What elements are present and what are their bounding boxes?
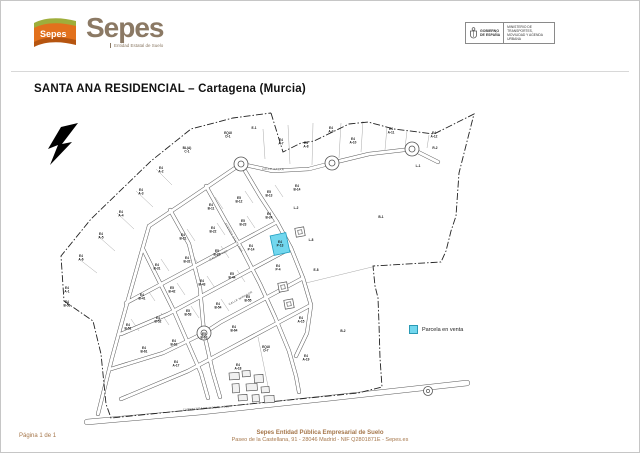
building-footprint: [238, 394, 247, 401]
parcel-label: E4A-5: [98, 232, 103, 240]
utility-square-inner: [287, 302, 292, 307]
parcel-label: BL(A)C-1: [183, 146, 192, 154]
parcel-label: E4A-10: [350, 137, 357, 145]
lot-line: [361, 121, 363, 152]
parcel-label: E4A-2: [158, 166, 163, 174]
parcel-label: E5B-44: [229, 272, 236, 280]
parcel-label: E4B-62: [171, 339, 178, 347]
lot-line: [288, 125, 290, 164]
building-footprint: [229, 372, 239, 380]
building-footprint: [246, 383, 257, 391]
building-footprint: [242, 370, 250, 377]
lot-line: [275, 185, 283, 197]
parcel-label: E-1: [252, 126, 257, 130]
document-footer: Sepes Entidad Pública Empresarial de Sue…: [1, 430, 639, 443]
parcel-label: E4B-61: [141, 346, 148, 354]
property-boundary: [61, 113, 474, 418]
parcel-label: E4A-12: [431, 131, 438, 139]
street-casing: [241, 164, 311, 356]
building-footprint: [264, 395, 274, 403]
utility-square-inner: [298, 230, 303, 235]
parcel-label: E4P-4: [276, 264, 281, 272]
lot-line: [217, 223, 225, 235]
parcel-label: E5B-42: [169, 286, 176, 294]
parcel-label: E4A-3: [138, 188, 143, 196]
parcel-label: E4B-43: [199, 279, 206, 287]
parcel-label: B-2: [340, 329, 345, 333]
lot-line: [191, 306, 199, 318]
parcel-label: E4P-14: [248, 244, 255, 252]
cul-de-sac: [424, 387, 433, 396]
parcel-label: E4B-56: [64, 300, 71, 308]
parcel-label: E4A-15: [298, 316, 305, 324]
parcel-label: E5B-53: [185, 309, 192, 317]
street: [332, 149, 412, 163]
parcel-label: E4B-31: [154, 263, 161, 271]
parcel-label: L-8: [309, 238, 314, 242]
parcel-label: E4A-1: [64, 286, 69, 294]
parcel-label: EQUID-1: [224, 131, 232, 139]
parcel-label: E5B-23: [240, 219, 247, 227]
building-footprint: [254, 374, 264, 383]
parcel-label: E-8: [314, 268, 319, 272]
parcel-label: E5B-12: [236, 196, 243, 204]
lot-line: [207, 276, 215, 288]
roundabout-island: [238, 161, 244, 167]
parcel-label: E4A-19: [303, 354, 310, 362]
parcel-label: E4B-22: [210, 226, 217, 234]
parcel-label: E4A-18: [235, 363, 242, 371]
north-arrow-icon: [48, 123, 78, 165]
lot-line: [263, 129, 265, 159]
parcel-label: E4B-32: [184, 256, 191, 264]
lot-line: [245, 191, 253, 203]
lot-line: [247, 216, 255, 228]
parcel-label: E4A-6: [78, 254, 83, 262]
lot-line: [221, 299, 229, 311]
building-footprint: [232, 384, 240, 393]
parcel-label: E4A-17: [173, 360, 180, 368]
parcel-label: L-2: [294, 206, 299, 210]
street: [241, 163, 332, 171]
parcel-label: B-1: [378, 215, 383, 219]
parcel-label: E4B-64: [231, 325, 238, 333]
parcel-label: L-1: [416, 164, 421, 168]
parcel-label: E4B-11: [208, 203, 215, 211]
parcel-label: E4B-14: [294, 184, 301, 192]
parcel-label: E4A-11: [388, 127, 395, 135]
lot-line: [177, 283, 185, 295]
parcel-label: E4A-4: [118, 210, 123, 218]
utility-square-inner: [281, 285, 286, 290]
parcel-label: E4A-9: [328, 126, 333, 134]
parcel-label: E4A-7: [278, 138, 283, 146]
parcel-label: R-2: [432, 146, 437, 150]
legend-swatch: [409, 325, 418, 334]
parcel-label: E4B-54: [215, 302, 222, 310]
building-footprint: [252, 395, 259, 402]
roundabout-island: [409, 146, 415, 152]
site-plan-map[interactable]: E4A-2E4A-3E4A-4E4A-5E4A-6E4A-1BL(A)C-1EQ…: [1, 1, 640, 453]
street: [98, 226, 149, 414]
roundabout-island: [329, 160, 335, 166]
footer-address: Paseo de la Castellana, 91 - 28046 Madri…: [1, 437, 639, 443]
lot-line: [312, 123, 313, 165]
parcel-label: E4B-51: [125, 323, 132, 331]
legend-label: Parcela en venta: [422, 327, 463, 333]
street-name-label: CALLE SALAR: [262, 167, 284, 172]
lot-line: [161, 259, 169, 271]
lot-line: [427, 135, 429, 148]
document-page: Sepes Sepes Entidad Estatal de Suelo GOB…: [0, 0, 640, 453]
building-footprint: [261, 386, 269, 393]
street: [241, 164, 311, 356]
parcel-label: EQUID-7: [262, 345, 270, 353]
footer-company: Sepes Entidad Pública Empresarial de Sue…: [1, 430, 639, 436]
parcel-label: E5B-13: [266, 190, 273, 198]
map-legend: Parcela en venta: [409, 325, 463, 334]
